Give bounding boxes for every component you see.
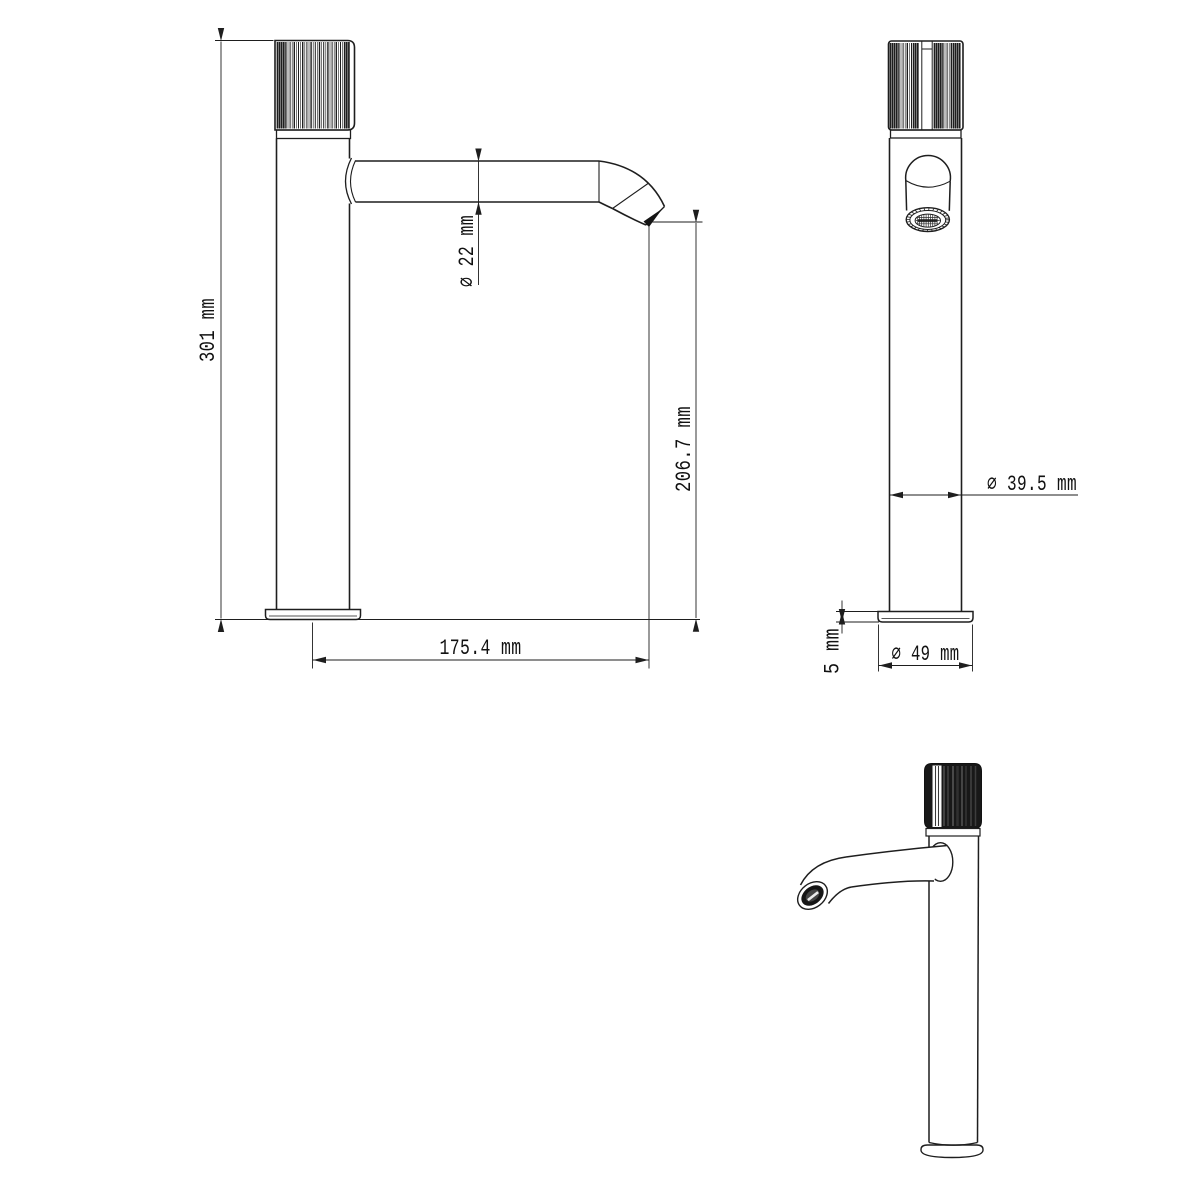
base-flange	[878, 612, 973, 623]
dim-spout-reach: 175.4 mm	[313, 226, 650, 669]
nozzle-outlet-shadow	[644, 209, 663, 228]
base-flange	[266, 610, 361, 620]
spout-cylinder-top-curve	[906, 181, 950, 188]
dim-base-thickness-label: 5 mm	[821, 628, 846, 674]
handle-knurl-texture	[278, 42, 349, 129]
base-flange	[921, 1145, 983, 1158]
handle-knurl-texture-right	[935, 43, 960, 129]
handle-collar	[277, 130, 351, 139]
side-view: 301 mm ∅ 22 mm 206.7 mm 175.4 mm	[196, 28, 703, 669]
dim-base-thickness: 5 mm	[821, 601, 880, 675]
dim-outlet-height-label: 206.7 mm	[672, 406, 697, 492]
spout-elbow-inner	[829, 887, 852, 904]
technical-drawing-canvas: 301 mm ∅ 22 mm 206.7 mm 175.4 mm	[0, 0, 1200, 1200]
handle-knurl-texture-left	[891, 43, 918, 129]
nozzle-joint-line	[613, 184, 649, 209]
spout-outlet	[792, 876, 832, 915]
dim-spout-diameter-label: ∅ 22 mm	[455, 215, 480, 287]
elbow-inner-curve	[599, 202, 613, 209]
handle-collar	[926, 829, 980, 837]
dim-base-diameter-label: ∅ 49 mm	[892, 642, 960, 667]
dim-base-diameter: ∅ 49 mm	[879, 625, 973, 672]
front-view: ∅ 39.5 mm 5 mm ∅ 49 mm	[821, 41, 1079, 674]
dim-spout-diameter: ∅ 22 mm	[455, 149, 482, 288]
elbow-outer-curve	[599, 161, 665, 207]
dim-overall-height: 301 mm	[196, 28, 274, 632]
perspective-view	[792, 764, 983, 1158]
spout-cylinder-left	[906, 181, 907, 211]
dim-spout-reach-label: 175.4 mm	[440, 636, 522, 661]
nozzle-lower-edge	[613, 209, 647, 226]
spout-joint-crescent-inner	[351, 161, 356, 203]
dim-body-diameter: ∅ 39.5 mm	[890, 472, 1079, 498]
handle-collar	[891, 130, 962, 138]
dim-overall-height-label: 301 mm	[196, 298, 221, 362]
dim-body-diameter-label: ∅ 39.5 mm	[987, 472, 1077, 497]
dim-outlet-height: 206.7 mm	[652, 210, 703, 632]
body-right-edge	[978, 836, 979, 1143]
spout-elbow-arc	[906, 155, 951, 181]
spout-elbow-outer	[801, 857, 847, 885]
spout-cylinder-right	[949, 181, 950, 211]
